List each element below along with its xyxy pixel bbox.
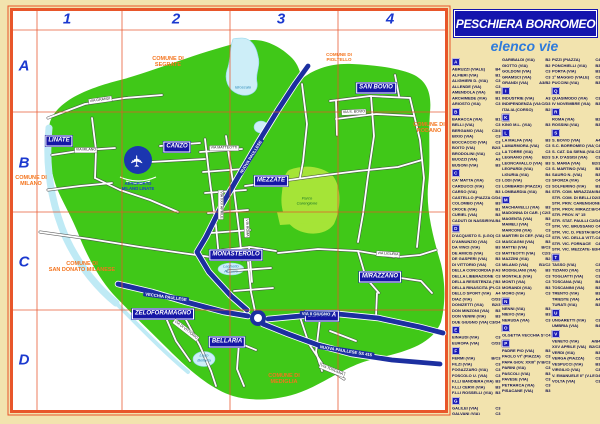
street-name: ITALIA (CORSO) [502, 107, 533, 113]
street-entry: ROSSINI (VIA)B3 [552, 122, 600, 128]
street-name: CADUTI DI NASSIRIYA (VIA) [452, 218, 494, 224]
street-name: VOLTA (VIA) [552, 379, 575, 385]
street-grid-ref: B3 [595, 302, 600, 308]
street-name: KING M.L. (VIA) [502, 122, 532, 128]
index-section-badge: S [552, 129, 560, 136]
index-section-badge: C [452, 170, 460, 177]
street-grid-ref: C3 [495, 411, 500, 415]
index-section-badge: I [502, 87, 510, 94]
street-grid-ref: C3/D4 [489, 319, 500, 325]
index-column: AABRUZZI (VIALE)B4ALFIERI (VIA)B1ALIGHIE… [452, 57, 501, 415]
index-section-badge: O [502, 325, 510, 332]
index-section-badge: U [552, 309, 560, 316]
street-name: F.LLI ROSSELLI (VIA) [452, 390, 493, 396]
street-name: GRANDI (VIA) [502, 80, 528, 86]
street-grid-ref: C4 [545, 333, 550, 339]
street-name: STR. VIC. MEZZATE-FOR. [552, 247, 591, 253]
index-section-badge: R [552, 108, 560, 115]
street-name: ROSSINI (VIA) [552, 122, 579, 128]
street-entry: PISACANE (VIA)B3 [502, 388, 551, 394]
index-section-badge: T [552, 254, 560, 261]
street-grid-ref: C3 [545, 291, 550, 297]
street-entry: GRANDI (VIA)A3/B2 [502, 80, 551, 86]
street-name: IV NOVEMBRE (VIA) [552, 101, 590, 107]
index-section-badge: D [452, 225, 460, 232]
street-grid-ref: C/D3 [491, 340, 500, 346]
street-entry: GALVANI (VIA)C3 [452, 411, 501, 415]
street-grid-ref: B3 [545, 388, 550, 394]
street-entry: ARIOSTO (VIA)C3 [452, 101, 501, 107]
index-section-badge: E [452, 327, 460, 334]
street-grid-ref: B3 [545, 122, 550, 128]
street-grid-ref: B2 [545, 107, 550, 113]
page-title: PESCHIERA BORROMEO [454, 10, 597, 37]
index-section-badge: K [502, 114, 510, 121]
index-section-badge: A [452, 59, 460, 66]
index-section-badge: V [552, 330, 560, 337]
street-entry: MORO (VIA)C3 [502, 291, 551, 297]
street-grid-ref: B3 [595, 80, 600, 86]
street-entry: IV NOVEMBRE (VIA)B3 [552, 101, 600, 107]
street-grid-ref: B4 [545, 189, 550, 195]
street-grid-ref: B4 [595, 323, 600, 329]
street-entry: ITALIA (CORSO)B2 [502, 107, 551, 113]
street-grid-ref: C3 [595, 379, 600, 385]
street-name: LOMBARDIA (VIA) [502, 189, 537, 195]
street-entry: DUE GIUGNO (VIA)C3/D4 [452, 319, 501, 325]
index-column: GARIBALDI (VIA)B2GIOTTO (VIA)B2GOLDONI (… [502, 57, 551, 415]
street-entry: NERUDA (VIA)C3 [502, 317, 551, 323]
index-section-badge: F [452, 348, 460, 355]
index-section-badge: N [502, 298, 510, 305]
street-name: UMBRIA (VIA) [552, 323, 578, 329]
street-entry: EUROPA (VIA)C/D3 [452, 340, 501, 346]
page: ✈ 1234ABCDLINATECANZOMEZZATESAN BOVIOMON… [0, 0, 600, 424]
street-grid-ref: C3 [545, 317, 550, 323]
index-column: PIZZI (PIAZZA)C4PONCHIELLI (VIA)B3PORTA … [552, 57, 600, 415]
street-name: NERUDA (VIA) [502, 317, 529, 323]
street-entry: VOLTA (VIA)C3 [552, 379, 600, 385]
street-name: BUSONI (VIA) [452, 162, 478, 168]
street-grid-ref: C3 [495, 101, 500, 107]
index-section-badge: G [452, 397, 460, 404]
street-grid-ref: B3 [495, 390, 500, 396]
street-name: PISACANE (VIA) [502, 388, 533, 394]
street-name: MORO (VIA) [502, 291, 525, 297]
street-grid-ref: B3 [595, 122, 600, 128]
street-name: EUROPA (VIA) [452, 340, 479, 346]
street-name: DUE GIUGNO (VIA) [452, 319, 488, 325]
street-entry: KING M.L. (VIA)B3 [502, 122, 551, 128]
street-grid-ref: B3/4 [592, 247, 600, 253]
street-entry: PUCCINI (VIA)B3 [552, 80, 600, 86]
street-name: PUCCINI (VIA) [552, 80, 579, 86]
street-grid-ref: B4 [495, 218, 500, 224]
street-entry: F.LLI ROSSELLI (VIA)B3 [452, 390, 501, 396]
street-entry: TURATI (VIA)B3 [552, 302, 600, 308]
street-name: ARIOSTO (VIA) [452, 101, 481, 107]
street-entry: UMBRIA (VIA)B4 [552, 323, 600, 329]
index-section-badge: Q [552, 87, 560, 94]
street-grid-ref: A3/B2 [539, 80, 550, 86]
street-name: TURATI (VIA) [552, 302, 577, 308]
street-entry: LOMBARDIA (VIA)B4 [502, 189, 551, 195]
street-index: AABRUZZI (VIALE)B4ALFIERI (VIA)B1ALIGHIE… [452, 57, 600, 415]
index-section-badge: L [502, 129, 510, 136]
page-subtitle: elenco vie [454, 38, 595, 54]
index-section-badge: M [502, 196, 510, 203]
map-frame [10, 8, 448, 413]
street-entry: OLGETTA VECCHIA STRADAC4 [502, 333, 551, 339]
index-section-badge: B [452, 108, 460, 115]
street-entry: BUSONI (VIA)B3 [452, 162, 501, 168]
index-section-badge: P [502, 340, 510, 347]
street-entry: STR. VIC. MEZZATE-FOR.B3/4 [552, 247, 600, 253]
street-name: GALVANI (VIA) [452, 411, 480, 415]
street-grid-ref: B3 [595, 101, 600, 107]
street-name: OLGETTA VECCHIA STRADA [502, 333, 544, 339]
street-grid-ref: B3 [495, 162, 500, 168]
street-entry: CADUTI DI NASSIRIYA (VIA)B4 [452, 218, 501, 224]
